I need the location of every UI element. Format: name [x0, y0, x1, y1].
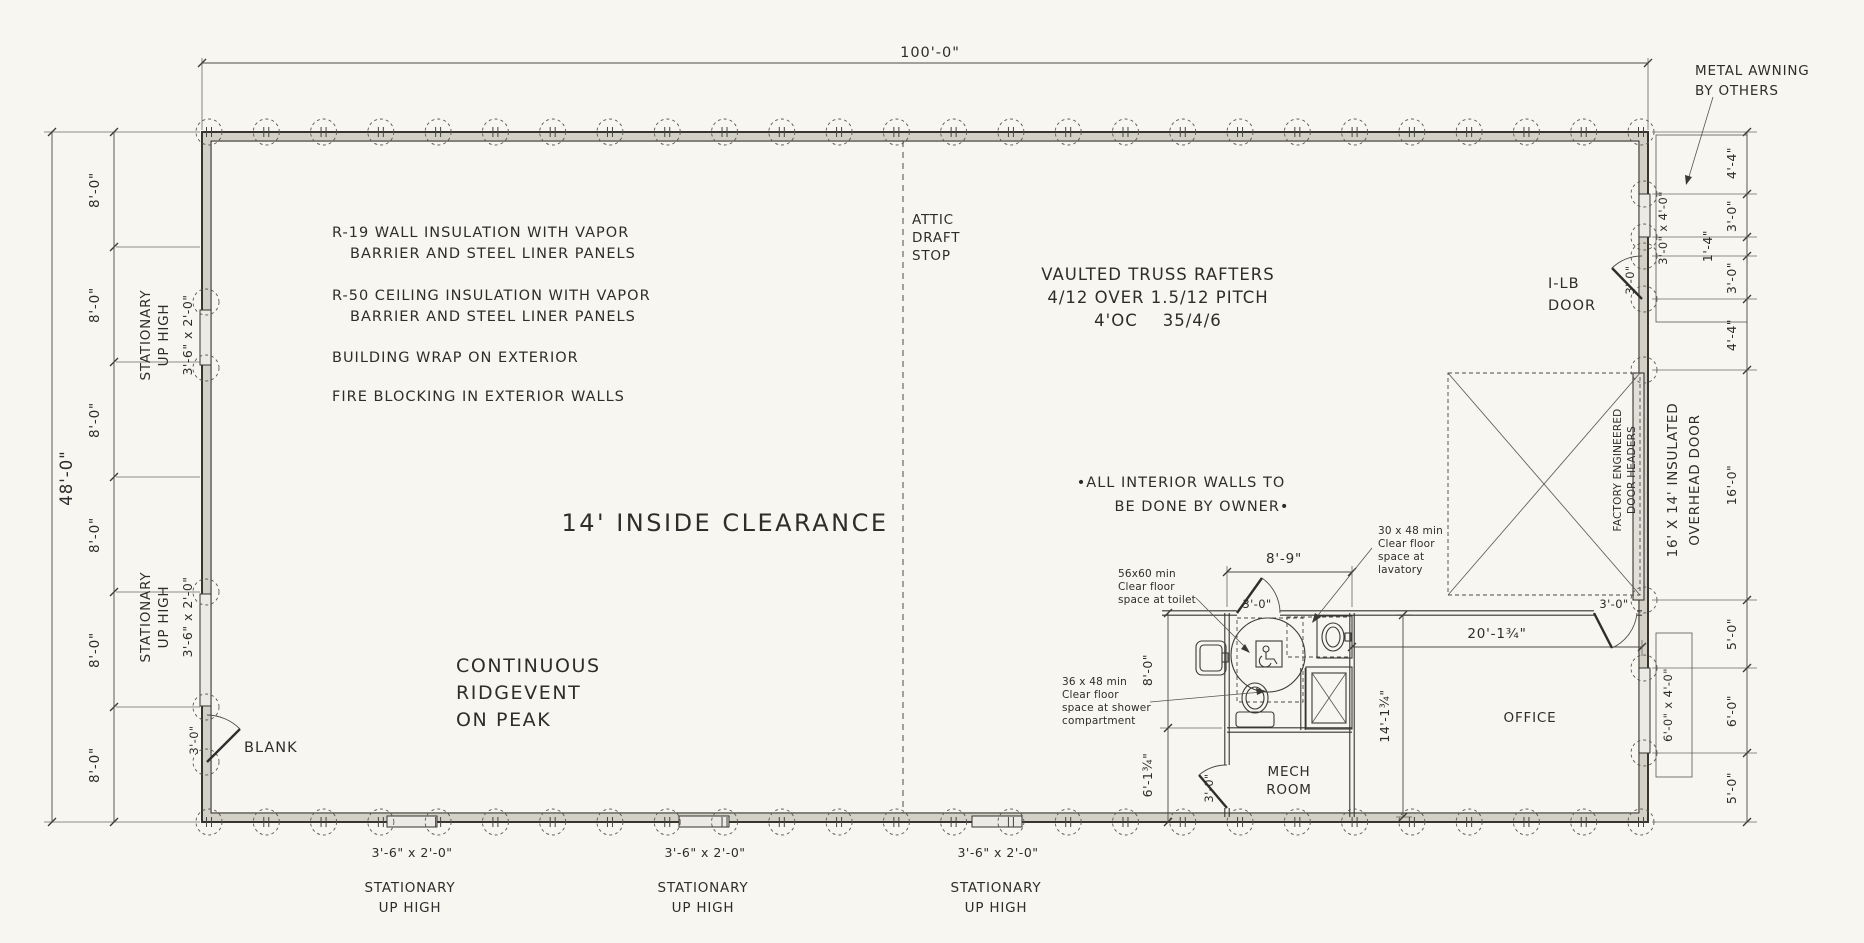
dim-4-4-top: 4'-4"	[1724, 147, 1739, 179]
ada-toilet-line2: Clear floor	[1118, 581, 1175, 593]
ridge-line3: ON PEAK	[456, 709, 551, 731]
bath-door-width: 3'-0"	[1242, 597, 1271, 611]
window-label-up-high: UP HIGH	[379, 900, 442, 916]
ridge-line1: CONTINUOUS	[456, 655, 601, 677]
ada-shower-line4: compartment	[1062, 715, 1136, 727]
dim-bath-width: 8'-9"	[1266, 551, 1302, 567]
interior-note-line2: BE DONE BY OWNER•	[1115, 499, 1290, 515]
window-label-stationary: STATIONARY	[138, 290, 154, 381]
dim-mech-height: 6'-1¾"	[1140, 753, 1155, 798]
dim-3-0-door: 3'-0"	[1724, 262, 1739, 294]
window-label-up-high: UP HIGH	[156, 586, 172, 649]
dim-bay-3: 8'-0"	[87, 402, 103, 438]
dim-16-0: 16'-0"	[1724, 465, 1739, 506]
ada-shower-line2: Clear floor	[1062, 689, 1119, 701]
window-label-stationary: STATIONARY	[365, 880, 456, 896]
bottom-window-2	[679, 816, 729, 827]
headers-line2: DOOR HEADERS	[1626, 426, 1638, 514]
blank-door-width: 3'-0"	[187, 725, 201, 754]
left-window-2	[200, 594, 211, 706]
ada-toilet-line3: space at toilet	[1118, 594, 1196, 606]
truss-line2: 4/12 OVER 1.5/12 PITCH	[1047, 288, 1268, 307]
bottom-window-3	[972, 816, 1022, 827]
window-label-size: 3'-6" x 2'-0"	[664, 845, 745, 860]
dim-1-4: 1'-4"	[1700, 230, 1715, 262]
attic-line2: DRAFT	[912, 230, 960, 246]
ada-lav-line3: space at	[1378, 551, 1424, 563]
dim-bay-5: 8'-0"	[87, 632, 103, 668]
bottom-window-1	[387, 816, 437, 827]
truss-line3: 4'OC 35/4/6	[1094, 311, 1222, 330]
ohd-line2: OVERHEAD DOOR	[1687, 414, 1703, 546]
blank-door-label: BLANK	[244, 740, 298, 756]
window-label-up-high: UP HIGH	[965, 900, 1028, 916]
dim-4-4-bottom: 4'-4"	[1724, 319, 1739, 351]
ohd-line1: 16' X 14' INSULATED	[1665, 403, 1681, 558]
note-r19-line1: R-19 WALL INSULATION WITH VAPOR	[332, 225, 629, 241]
window-label-size: 3'-6" x 2'-0"	[180, 576, 195, 657]
dim-bay-2: 8'-0"	[87, 287, 103, 323]
ilb-line1: I-LB	[1548, 276, 1580, 292]
ada-shower-line1: 36 x 48 min	[1062, 676, 1127, 688]
interior-note-line1: •ALL INTERIOR WALLS TO	[1077, 475, 1286, 491]
note-fire-blocking: FIRE BLOCKING IN EXTERIOR WALLS	[332, 389, 625, 405]
note-r50-line2: BARRIER AND STEEL LINER PANELS	[350, 309, 636, 325]
window-label-size: 3'-6" x 2'-0"	[371, 845, 452, 860]
dim-total-width: 100'-0"	[900, 45, 960, 61]
dim-office-width: 20'-1¾"	[1467, 626, 1526, 642]
dim-3-0-window: 3'-0"	[1724, 200, 1739, 232]
dim-5-0-top: 5'-0"	[1724, 618, 1739, 650]
right-window-top	[1639, 194, 1650, 237]
attic-line3: STOP	[912, 248, 951, 264]
window-label-stationary: STATIONARY	[138, 572, 154, 663]
dim-bay-6: 8'-0"	[87, 747, 103, 783]
dim-6-0: 6'-0"	[1724, 695, 1739, 727]
ada-lav-line1: 30 x 48 min	[1378, 525, 1443, 537]
attic-line1: ATTIC	[912, 212, 954, 228]
note-r19-line2: BARRIER AND STEEL LINER PANELS	[350, 246, 636, 262]
mech-door-width: 3'-0"	[1202, 773, 1216, 802]
mech-label-line2: ROOM	[1266, 782, 1311, 798]
note-r50-line1: R-50 CEILING INSULATION WITH VAPOR	[332, 288, 651, 304]
office-label: OFFICE	[1504, 710, 1557, 726]
floor-plan: 100'-0" 48'-0" 8'-0" 8'-0" 8'-0" 8'-0" 8…	[0, 0, 1864, 943]
window-label-size: 3'-6" x 2'-0"	[180, 294, 195, 375]
dim-bay-4: 8'-0"	[87, 517, 103, 553]
left-window-1	[200, 310, 211, 365]
right-top-window-size: 3'-0" x 4'-0"	[1656, 191, 1670, 265]
dim-total-depth: 48'-0"	[57, 450, 76, 506]
ada-shower-line3: space at shower	[1062, 702, 1151, 714]
note-building-wrap: BUILDING WRAP ON EXTERIOR	[332, 350, 579, 366]
dim-office-height: 14'-1¾"	[1377, 689, 1392, 742]
window-label-stationary: STATIONARY	[658, 880, 749, 896]
floor-plan-sheet: 100'-0" 48'-0" 8'-0" 8'-0" 8'-0" 8'-0" 8…	[0, 0, 1864, 943]
headers-line1: FACTORY ENGINEERED	[1612, 409, 1624, 532]
ridge-line2: RIDGEVENT	[456, 682, 581, 704]
ilb-door-width: 3'-0"	[1623, 265, 1637, 294]
dim-bay-1: 8'-0"	[87, 172, 103, 208]
awning-line2: BY OTHERS	[1695, 83, 1779, 99]
window-label-up-high: UP HIGH	[672, 900, 735, 916]
ada-toilet-line1: 56x60 min	[1118, 568, 1176, 580]
window-label-stationary: STATIONARY	[951, 880, 1042, 896]
dim-bath-height: 8'-0"	[1140, 654, 1155, 686]
dim-5-0-bottom: 5'-0"	[1724, 772, 1739, 804]
truss-line1: VAULTED TRUSS RAFTERS	[1041, 265, 1275, 284]
ada-lav-line4: lavatory	[1378, 564, 1423, 576]
awning-line1: METAL AWNING	[1695, 63, 1810, 79]
ada-lav-line2: Clear floor	[1378, 538, 1435, 550]
office-door-width: 3'-0"	[1599, 597, 1628, 611]
mech-label-line1: MECH	[1268, 764, 1311, 780]
window-label-up-high: UP HIGH	[156, 304, 172, 367]
right-bottom-window-size: 6'-0" x 4'-0"	[1661, 668, 1675, 742]
window-label-size: 3'-6" x 2'-0"	[957, 845, 1038, 860]
note-inside-clearance: 14' INSIDE CLEARANCE	[561, 509, 888, 537]
ilb-line2: DOOR	[1548, 298, 1596, 314]
